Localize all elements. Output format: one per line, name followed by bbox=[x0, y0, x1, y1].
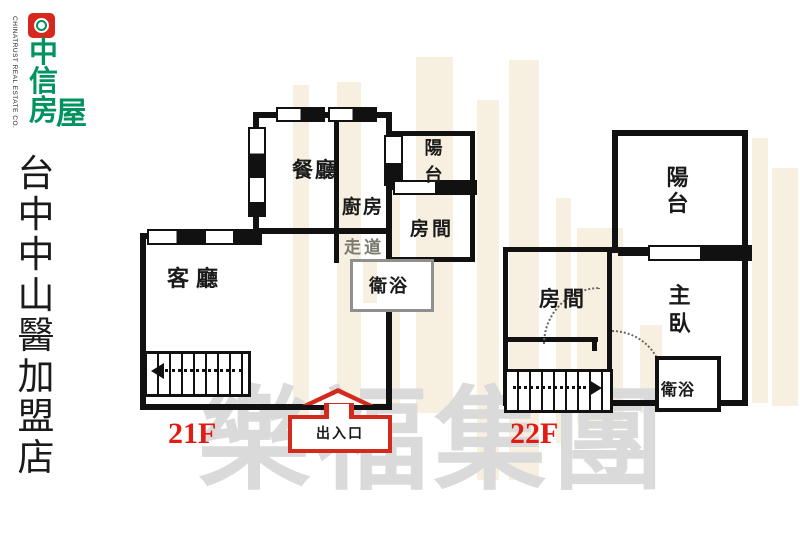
store-name-vertical: 台中中山醫加盟店 bbox=[16, 154, 56, 478]
window bbox=[147, 229, 206, 245]
room-label-bath-22f: 衛浴 bbox=[661, 376, 695, 400]
entrance-label: 出入口 bbox=[316, 426, 364, 442]
entrance-arrow-stem-inner bbox=[329, 404, 349, 419]
window bbox=[328, 107, 377, 122]
brand-char-4: 屋 bbox=[56, 99, 87, 130]
room-label-balcony-21f: 陽台 bbox=[424, 135, 443, 189]
floor-label-21f: 21F bbox=[168, 417, 216, 451]
entrance-box: 出入口 bbox=[288, 415, 392, 453]
room-label-corridor: 走道 bbox=[344, 233, 384, 258]
room-label-balcony-22f: 陽台 bbox=[666, 166, 689, 218]
stair-direction-arrow-left-icon bbox=[151, 363, 164, 379]
wall bbox=[612, 130, 618, 253]
brand-char-3: 房 bbox=[29, 96, 58, 125]
watermark-building-bar bbox=[772, 168, 798, 406]
logo-flower-icon bbox=[34, 18, 49, 33]
room-label-bath-21f: 衛浴 bbox=[369, 272, 409, 298]
window bbox=[248, 127, 266, 176]
room-label-living: 客廳 bbox=[167, 261, 225, 293]
window bbox=[204, 229, 262, 245]
brand-char-1: 中 bbox=[29, 38, 58, 67]
room-label-dining: 餐廳 bbox=[292, 154, 338, 184]
wall bbox=[470, 131, 475, 262]
wall bbox=[334, 228, 339, 263]
wall bbox=[612, 130, 748, 136]
window bbox=[276, 107, 325, 122]
room-label-room-21f: 房間 bbox=[410, 214, 454, 241]
floorplan-screenshot: 樂福集團 中 信 房 屋 CHINATRUST REAL ESTATE CO. … bbox=[0, 0, 800, 553]
window bbox=[648, 245, 752, 261]
window bbox=[248, 176, 266, 217]
stair-direction-arrow-right-icon bbox=[589, 380, 602, 396]
window bbox=[384, 135, 403, 186]
floor-label-22f: 22F bbox=[510, 417, 558, 451]
stair-path-dotted-line bbox=[165, 369, 242, 372]
wall bbox=[503, 247, 612, 252]
watermark-building-bar bbox=[752, 138, 768, 403]
stair-path-dotted-line bbox=[513, 386, 586, 389]
brand-char-2: 信 bbox=[29, 67, 58, 96]
brand-english-subtitle: CHINATRUST REAL ESTATE CO. bbox=[11, 16, 18, 166]
room-label-room-22f: 房間 bbox=[539, 283, 587, 313]
staircase-21f bbox=[144, 351, 251, 397]
staircase-22f bbox=[504, 369, 613, 413]
room-label-kitchen: 廚房 bbox=[342, 192, 384, 219]
watermark-building-bar bbox=[293, 85, 309, 415]
wall bbox=[742, 130, 748, 406]
room-label-master-bedroom: 主臥 bbox=[668, 283, 691, 339]
